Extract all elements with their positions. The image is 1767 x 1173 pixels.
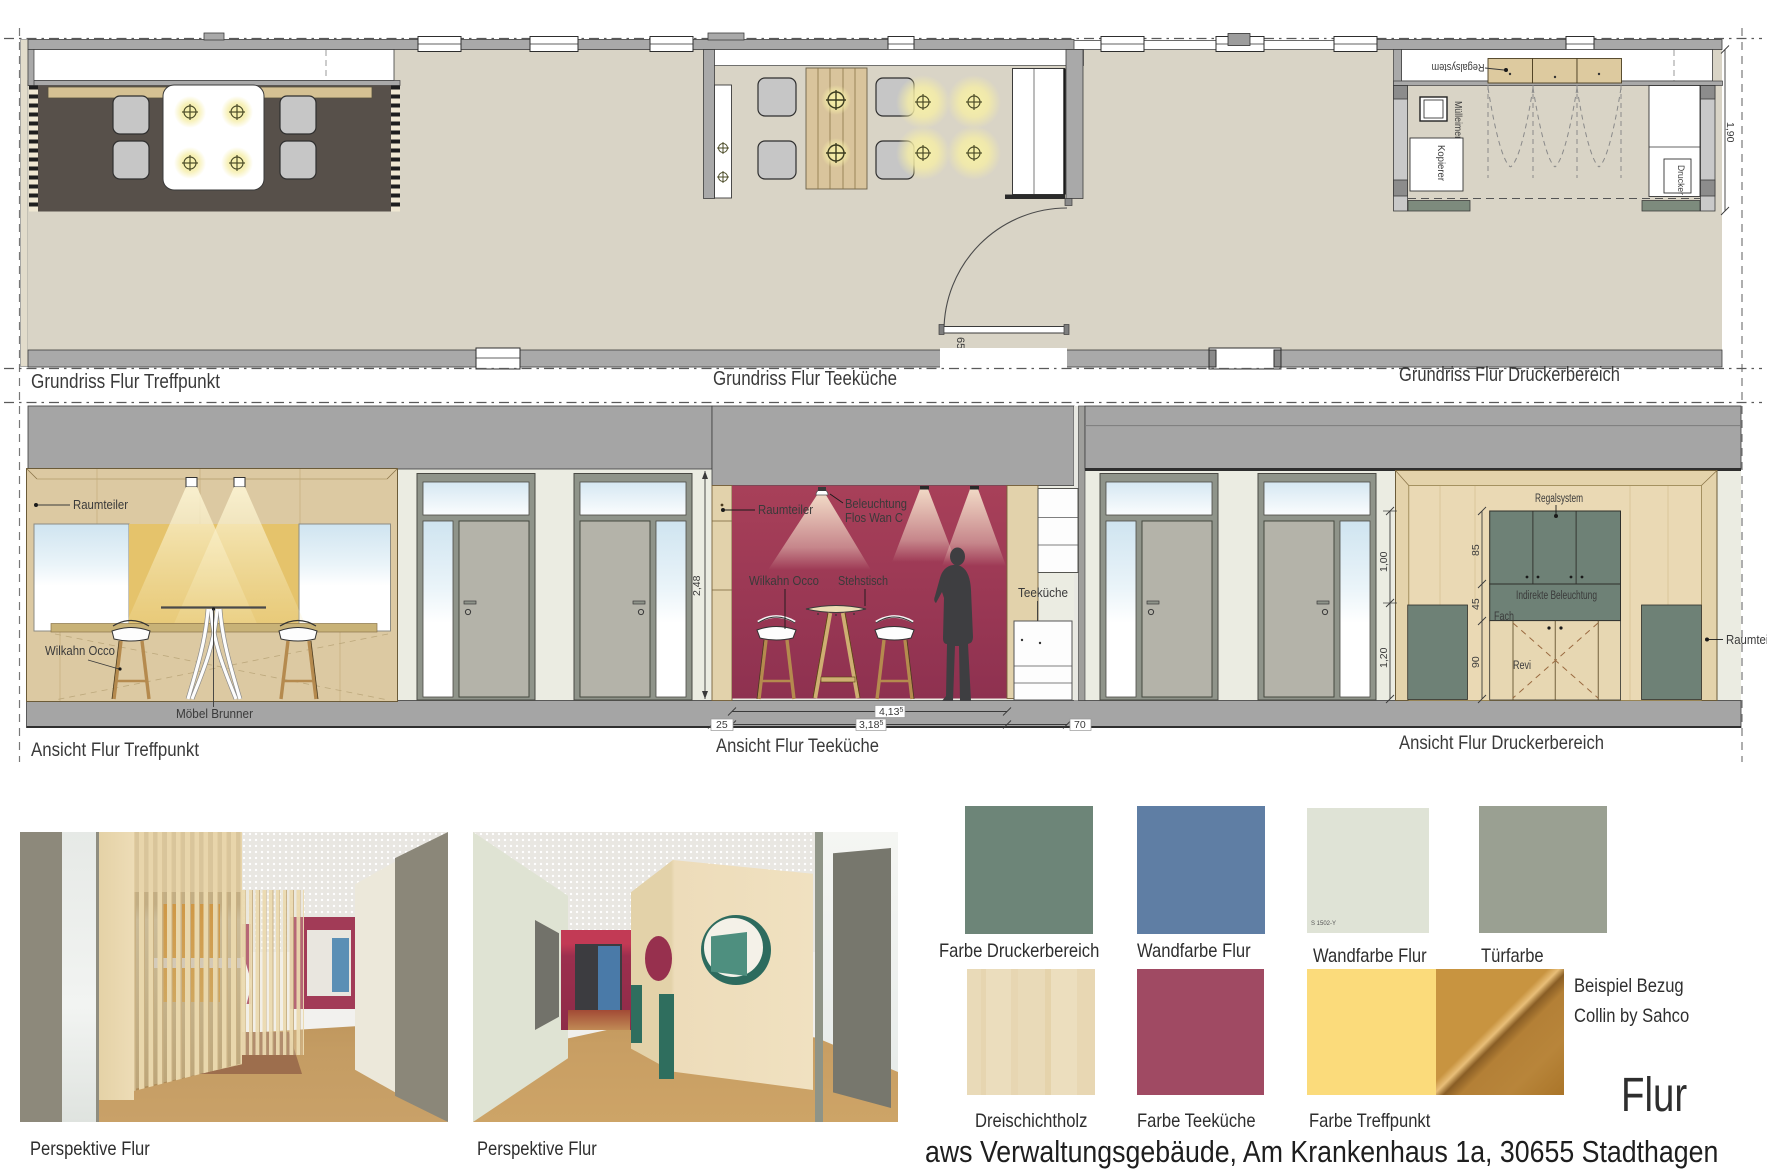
svg-text:Grundriss Flur Treffpunkt: Grundriss Flur Treffpunkt (31, 370, 220, 393)
svg-text:Regalsystem: Regalsystem (1535, 493, 1583, 505)
svg-text:Raumteiler: Raumteiler (1726, 633, 1767, 647)
svg-text:1,90: 1,90 (1724, 122, 1736, 143)
svg-text:Wilkahn Occo: Wilkahn Occo (45, 644, 115, 658)
svg-text:Grundriss Flur Teeküche: Grundriss Flur Teeküche (713, 367, 897, 390)
svg-text:1,00: 1,00 (1378, 551, 1390, 572)
svg-text:Ansicht Flur Treffpunkt: Ansicht Flur Treffpunkt (31, 739, 199, 761)
svg-text:Teeküche: Teeküche (1018, 586, 1068, 600)
svg-text:90: 90 (1470, 656, 1482, 668)
svg-text:45: 45 (1470, 598, 1482, 610)
svg-text:Möbel Brunner: Möbel Brunner (176, 707, 253, 721)
svg-text:Grundriss Flur Druckerbereich: Grundriss Flur Druckerbereich (1399, 363, 1620, 386)
svg-text:Wilkahn Occo: Wilkahn Occo (749, 574, 819, 588)
svg-text:70: 70 (1074, 719, 1086, 731)
svg-text:Raumteiler: Raumteiler (758, 503, 813, 517)
svg-text:Indirekte Beleuchtung: Indirekte Beleuchtung (1516, 590, 1597, 602)
svg-text:Raumteiler: Raumteiler (73, 498, 128, 512)
svg-text:Drucker: Drucker (1675, 165, 1686, 195)
svg-text:Flos Wan C: Flos Wan C (845, 511, 903, 525)
svg-text:85: 85 (1470, 544, 1482, 556)
svg-text:Mülleimer: Mülleimer (1452, 101, 1464, 139)
svg-text:Kopierer: Kopierer (1435, 145, 1447, 181)
svg-text:Revi: Revi (1513, 660, 1531, 672)
svg-text:Beleuchtung: Beleuchtung (845, 497, 907, 511)
svg-text:Ansicht Flur Druckerbereich: Ansicht Flur Druckerbereich (1399, 732, 1604, 754)
svg-text:Regalsystem: Regalsystem (1432, 61, 1485, 73)
svg-text:65: 65 (954, 337, 966, 349)
svg-text:25: 25 (716, 719, 728, 731)
svg-text:Ansicht Flur Teeküche: Ansicht Flur Teeküche (716, 735, 879, 757)
svg-text:Stehstisch: Stehstisch (838, 574, 888, 588)
svg-text:2,48: 2,48 (691, 575, 703, 596)
svg-text:1,20: 1,20 (1378, 647, 1390, 668)
